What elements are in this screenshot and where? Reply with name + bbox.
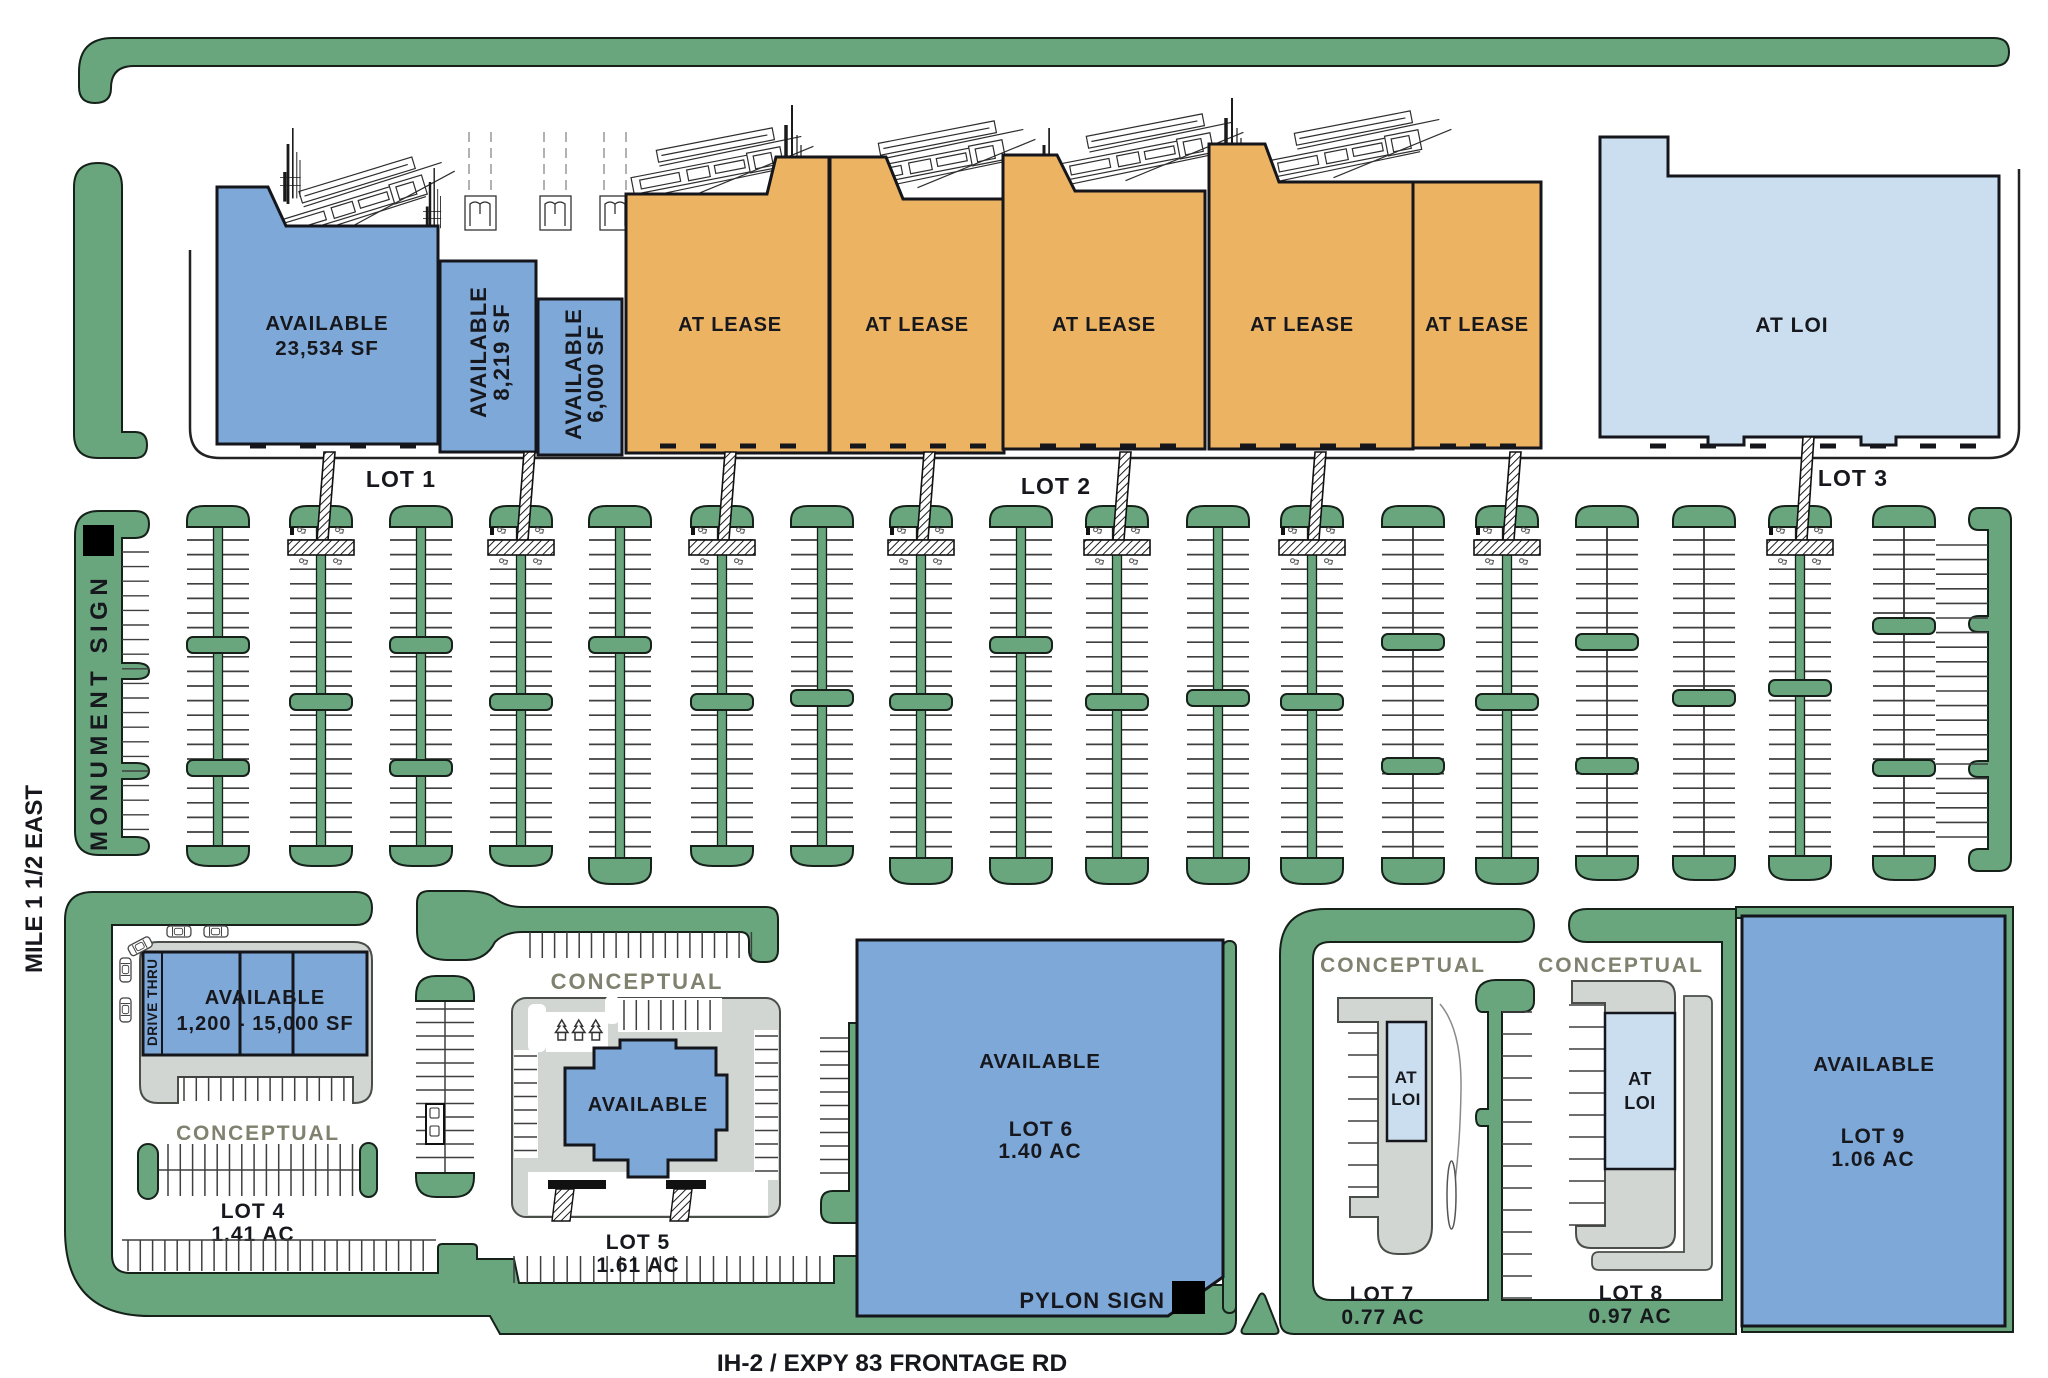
svg-text:23,534 SF: 23,534 SF [275, 337, 379, 360]
svg-text:AT LEASE: AT LEASE [1250, 314, 1354, 336]
svg-text:LOT 8: LOT 8 [1599, 1282, 1664, 1305]
svg-text:AT LEASE: AT LEASE [1425, 314, 1529, 336]
svg-text:LOT 6: LOT 6 [1009, 1118, 1074, 1141]
svg-text:1.41 AC: 1.41 AC [211, 1223, 294, 1246]
svg-text:MILE 1 1/2 EAST: MILE 1 1/2 EAST [21, 785, 48, 973]
svg-text:0.97 AC: 0.97 AC [1588, 1305, 1671, 1328]
svg-text:LOT 2: LOT 2 [1021, 473, 1091, 499]
svg-text:DRIVE THRU: DRIVE THRU [145, 958, 160, 1046]
svg-text:AVAILABLE: AVAILABLE [466, 286, 491, 418]
svg-text:LOI: LOI [1624, 1093, 1656, 1113]
svg-text:AT: AT [1628, 1069, 1652, 1089]
svg-text:LOT 7: LOT 7 [1350, 1283, 1415, 1306]
svg-text:AVAILABLE: AVAILABLE [979, 1050, 1100, 1073]
svg-text:CONCEPTUAL: CONCEPTUAL [176, 1122, 340, 1145]
svg-text:AT LOI: AT LOI [1755, 314, 1828, 337]
svg-text:0.77 AC: 0.77 AC [1341, 1306, 1424, 1329]
svg-text:CONCEPTUAL: CONCEPTUAL [1320, 954, 1486, 977]
svg-text:LOT 3: LOT 3 [1818, 465, 1888, 491]
svg-text:1.06 AC: 1.06 AC [1831, 1148, 1914, 1171]
svg-text:CONCEPTUAL: CONCEPTUAL [1538, 954, 1704, 977]
svg-text:IH-2 / EXPY 83 FRONTAGE RD: IH-2 / EXPY 83 FRONTAGE RD [717, 1350, 1067, 1377]
svg-text:LOT 5: LOT 5 [606, 1231, 671, 1254]
svg-text:AVAILABLE: AVAILABLE [1813, 1053, 1934, 1076]
svg-text:LOT 9: LOT 9 [1841, 1125, 1906, 1148]
svg-text:PYLON SIGN: PYLON SIGN [1019, 1288, 1165, 1313]
svg-text:CONCEPTUAL: CONCEPTUAL [551, 969, 724, 994]
svg-text:6,000 SF: 6,000 SF [583, 325, 608, 422]
svg-text:LOT 4: LOT 4 [221, 1200, 286, 1223]
svg-text:1,200 - 15,000 SF: 1,200 - 15,000 SF [176, 1013, 353, 1035]
svg-text:AVAILABLE: AVAILABLE [588, 1094, 708, 1116]
svg-text:LOI: LOI [1391, 1090, 1421, 1109]
svg-text:AVAILABLE: AVAILABLE [265, 312, 388, 335]
svg-text:1.40 AC: 1.40 AC [998, 1140, 1081, 1163]
svg-text:AT LEASE: AT LEASE [1052, 314, 1156, 336]
svg-text:AVAILABLE: AVAILABLE [205, 987, 325, 1009]
svg-text:1.61 AC: 1.61 AC [596, 1254, 679, 1277]
svg-text:8,219 SF: 8,219 SF [489, 303, 514, 400]
svg-text:AT: AT [1395, 1068, 1418, 1087]
svg-text:LOT 1: LOT 1 [366, 466, 436, 492]
svg-text:AT LEASE: AT LEASE [678, 314, 782, 336]
svg-text:MONUMENT SIGN: MONUMENT SIGN [86, 573, 113, 851]
svg-text:AT LEASE: AT LEASE [865, 314, 969, 336]
